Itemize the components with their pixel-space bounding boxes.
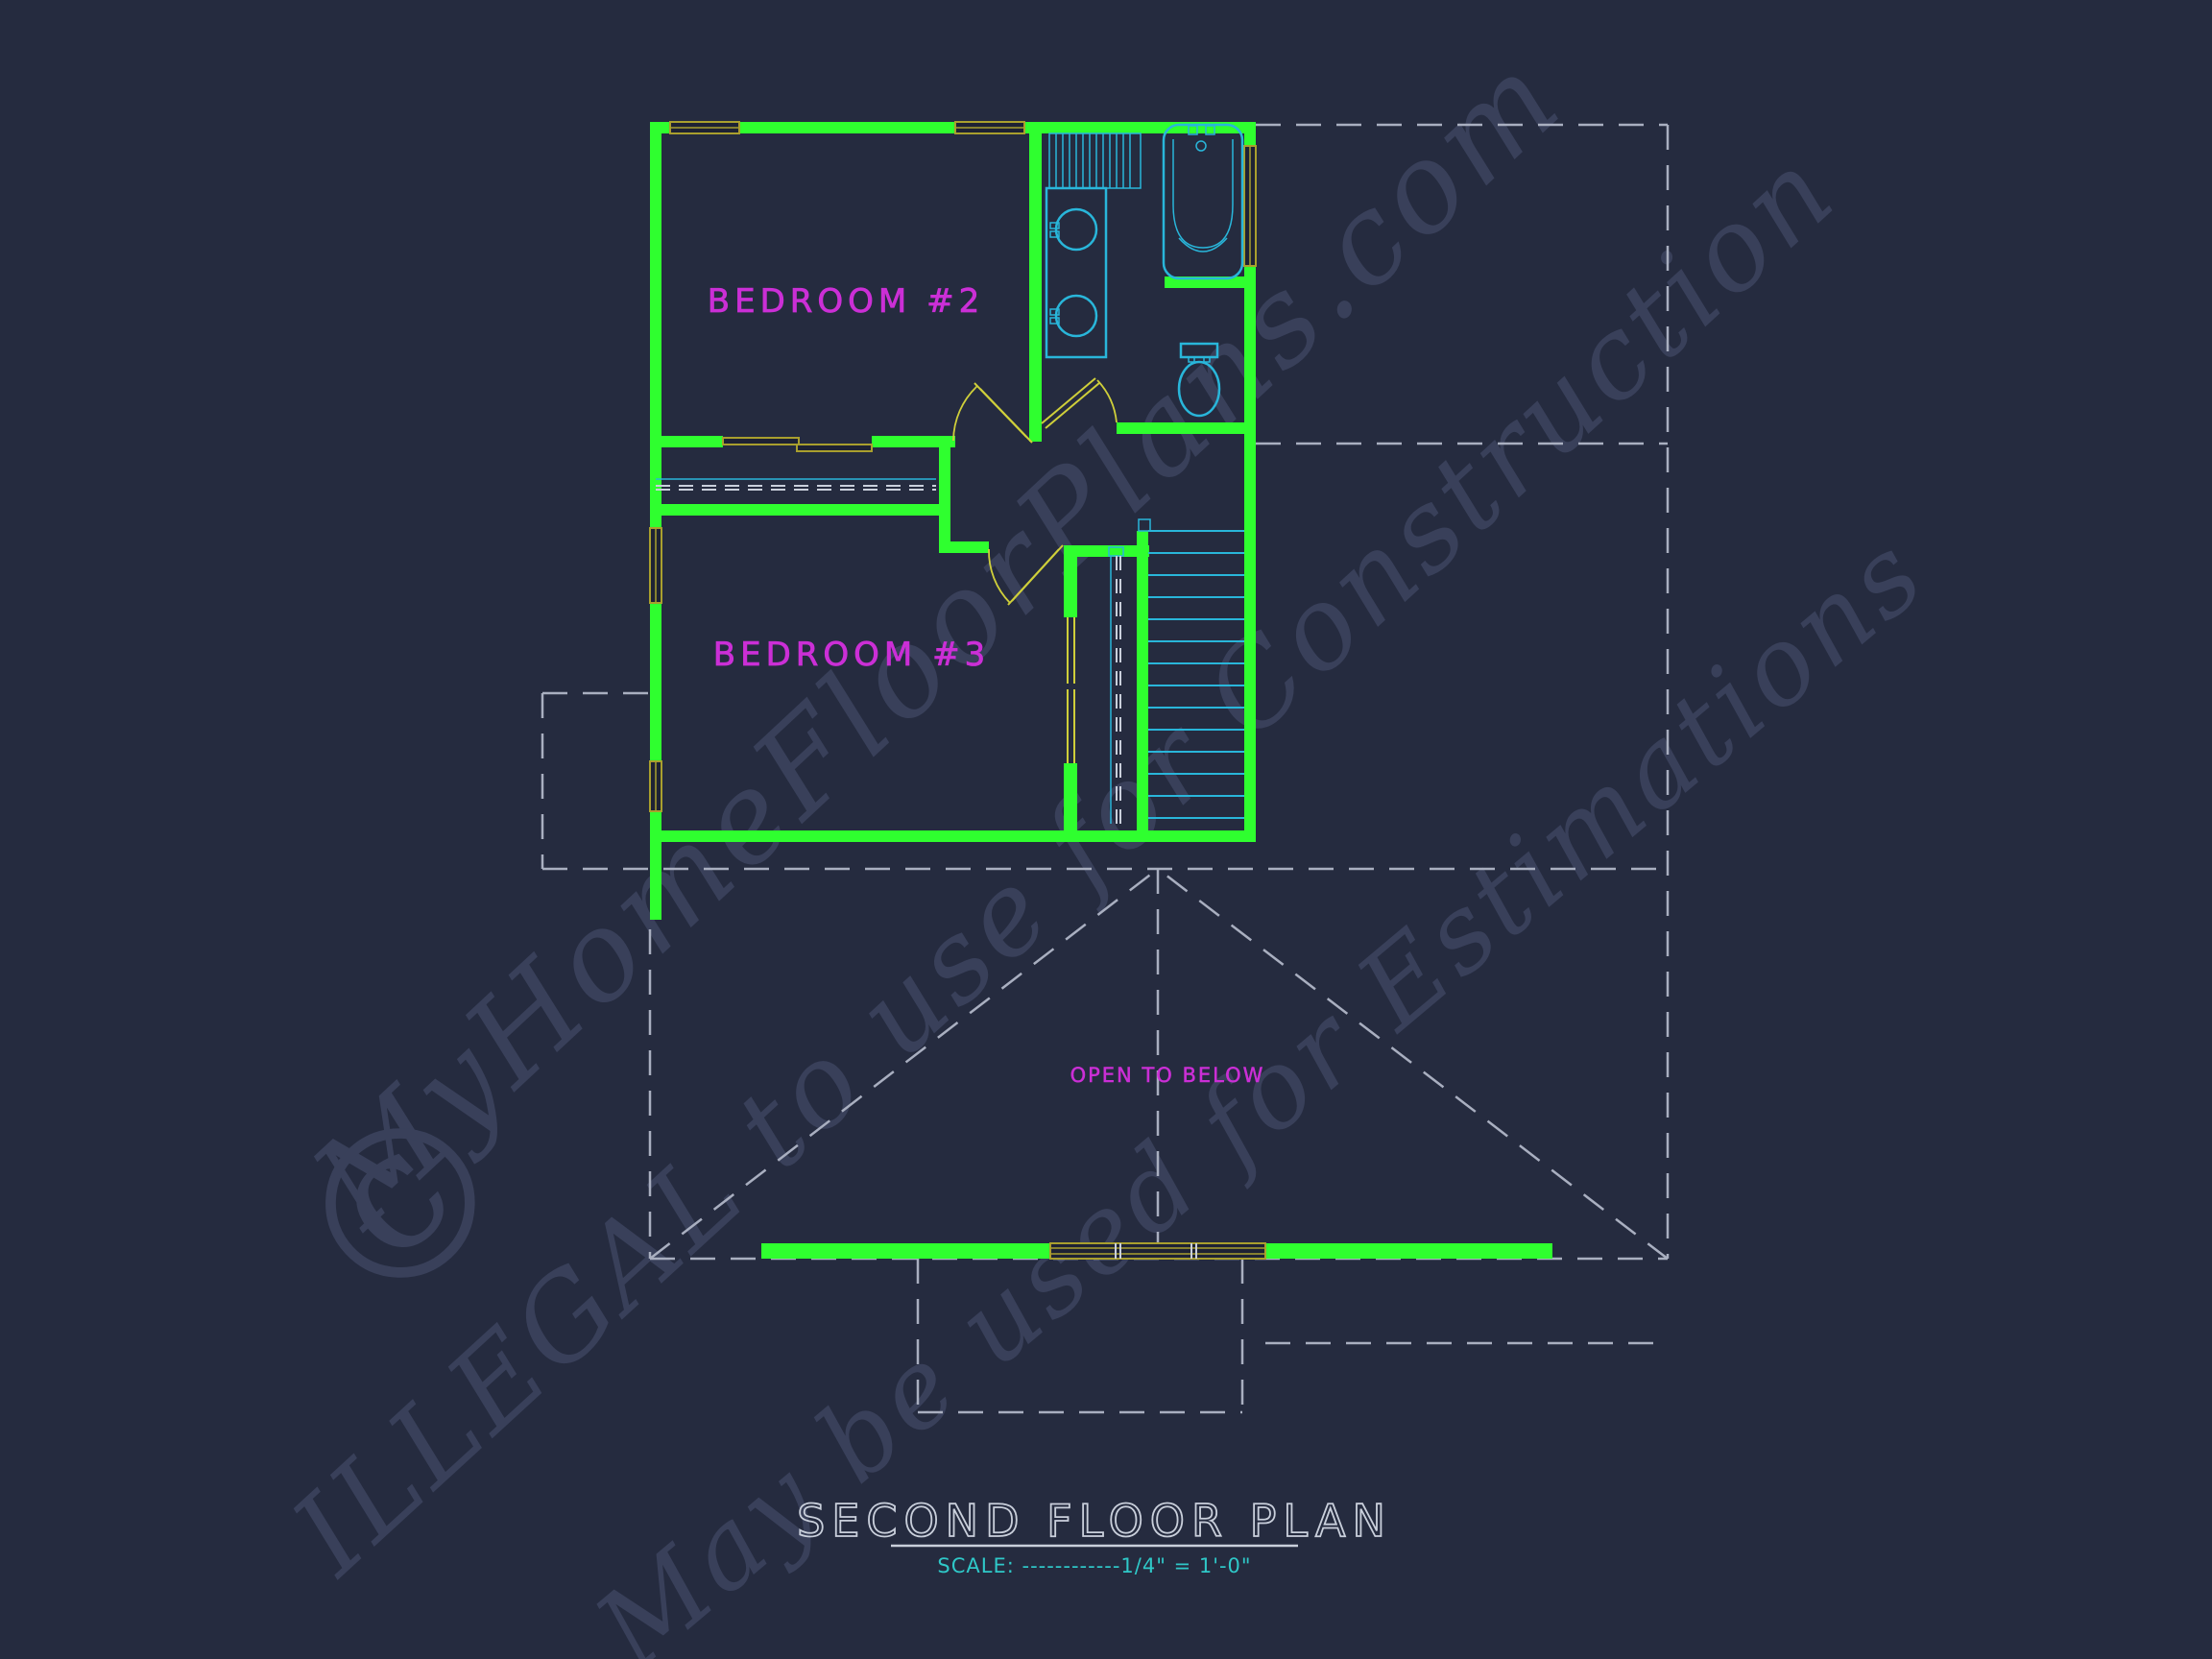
window-bath-right <box>1244 146 1256 266</box>
closet-slider-panel-2 <box>797 445 872 451</box>
title-block: SECOND FLOOR PLAN SCALE: ------------1/4… <box>797 1495 1392 1577</box>
wall-stair-west-upper <box>1064 557 1077 617</box>
wall-bottom-interior <box>661 830 1256 842</box>
window-bedroom3-left-lower <box>650 761 661 811</box>
sill-wall-right <box>1265 1243 1552 1259</box>
sill-wall-left <box>761 1243 1050 1259</box>
bedroom2-label: BEDROOM #2 <box>708 282 984 321</box>
window-bedroom3-left-upper <box>650 528 661 603</box>
wall-bedroom2-bottom-left <box>650 436 723 447</box>
sink-upper <box>1050 209 1096 250</box>
plan-scale: SCALE: ------------1/4" = 1'-0" <box>937 1554 1251 1577</box>
wall-left-exterior-upper <box>650 133 661 528</box>
wall-hall-west <box>939 436 950 553</box>
window-sill-center <box>1050 1243 1265 1259</box>
bedroom3-label: BEDROOM #3 <box>713 636 990 674</box>
wall-right-exterior <box>1244 266 1256 842</box>
watermark: MyHomeFloorPlans.com ILLEGAL to use for … <box>245 25 1949 1659</box>
closet-slider-panel-1 <box>723 438 799 445</box>
wall-stair-inner <box>1137 531 1148 830</box>
tub-drain <box>1196 141 1206 151</box>
wall-bedroom3-top <box>661 504 950 516</box>
floor-plan-canvas: MyHomeFloorPlans.com ILLEGAL to use for … <box>0 0 2212 1659</box>
wall-left-exterior-lower <box>650 811 661 920</box>
wall-right-exterior-top <box>1244 133 1256 146</box>
wall-hall-stub <box>950 541 989 553</box>
window-top-left <box>670 122 739 133</box>
window-top-right <box>955 122 1024 133</box>
vanity-counter <box>1046 188 1106 357</box>
wall-stair-west-lower <box>1064 763 1077 830</box>
linen-hatch <box>1049 133 1141 188</box>
wall-bath-divider <box>1029 133 1042 442</box>
open-to-below-label: OPEN TO BELOW <box>1070 1064 1265 1087</box>
sink-lower <box>1050 296 1096 336</box>
plan-title: SECOND FLOOR PLAN <box>797 1495 1392 1547</box>
stair-guard-railing <box>1068 617 1074 763</box>
bedroom2-door <box>953 383 1032 443</box>
wall-left-exterior-mid <box>650 603 661 761</box>
wall-landing-top <box>1064 545 1149 557</box>
bathtub <box>1164 125 1242 278</box>
floor-plan-drawing: MyHomeFloorPlans.com ILLEGAL to use for … <box>0 0 2212 1659</box>
wall-bath-bottom <box>1117 422 1256 434</box>
